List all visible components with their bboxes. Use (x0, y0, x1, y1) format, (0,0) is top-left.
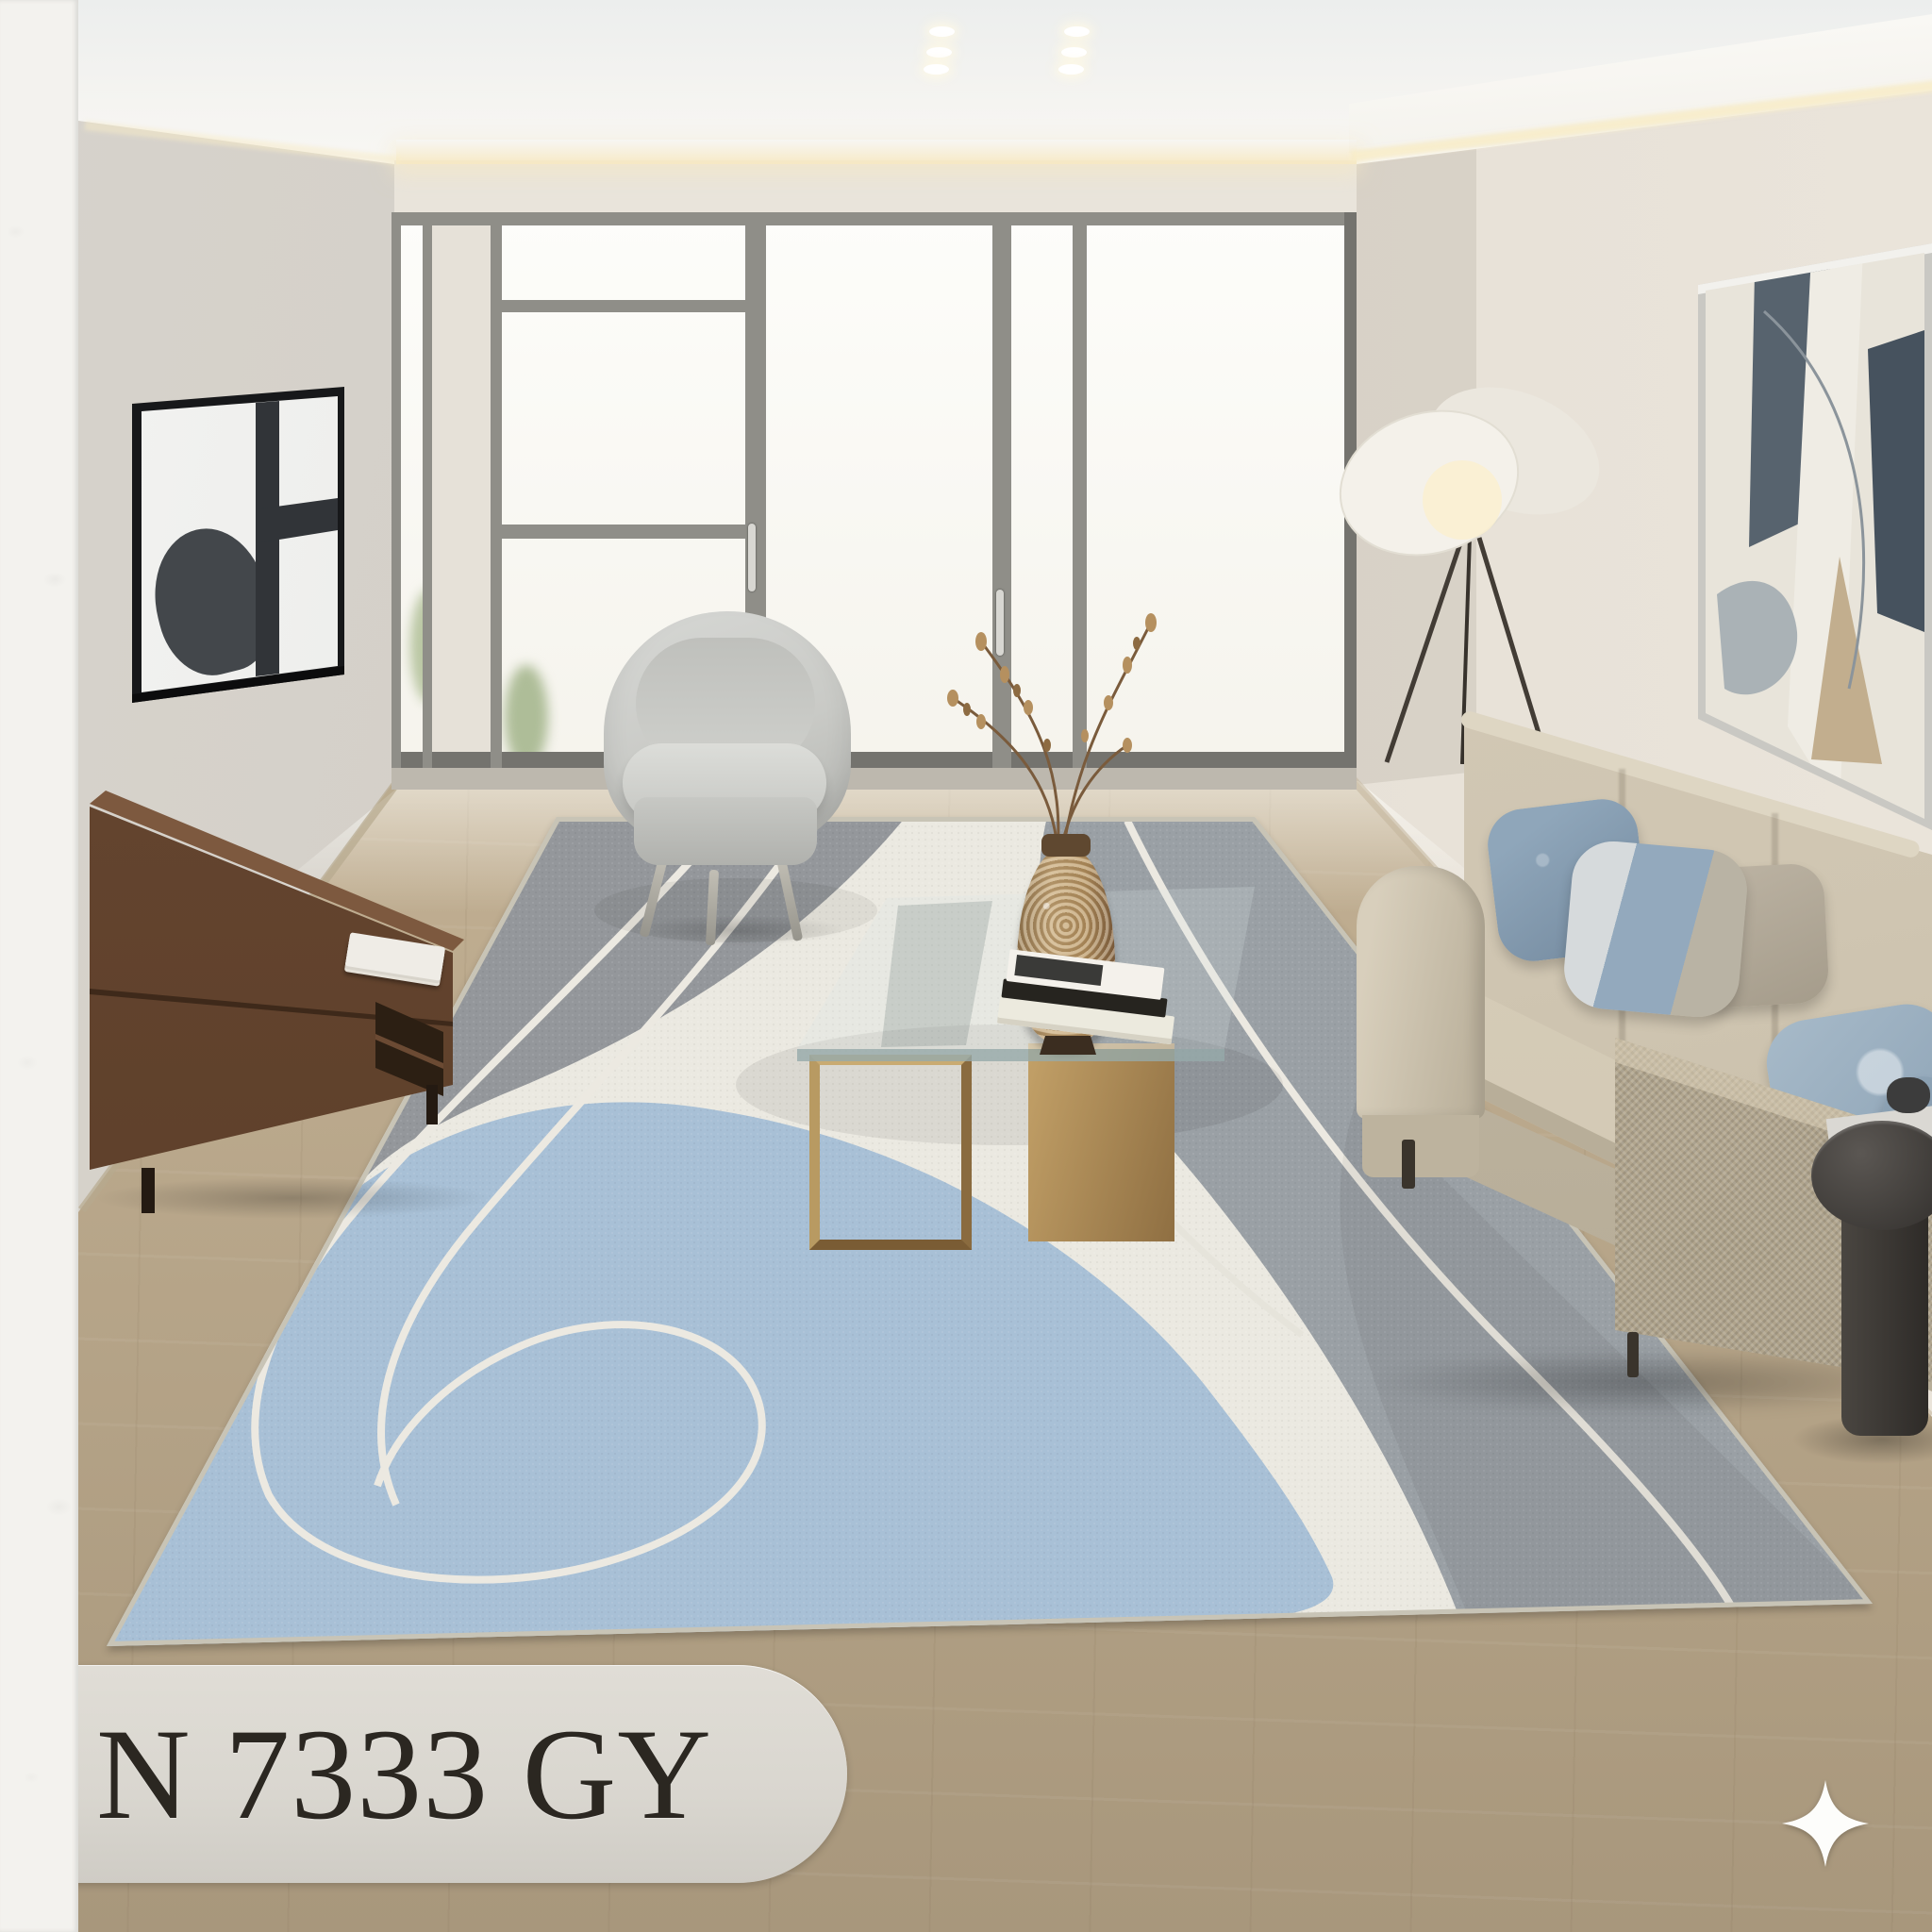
ceiling-spotlight (1058, 64, 1084, 75)
coffee-table-leg-block (1028, 1043, 1174, 1241)
throw-pillow (1561, 838, 1751, 1021)
armchair-shadow (628, 915, 845, 945)
living-room-scene (0, 0, 1932, 1932)
coffee-table-leg-frame (809, 1055, 972, 1250)
sofa-leg (1627, 1332, 1639, 1377)
product-code-plaque: N 7333 GY (0, 1665, 847, 1883)
product-code: N 7333 GY (96, 1699, 712, 1849)
window-mullion (423, 212, 432, 790)
book-cover (1014, 955, 1103, 986)
vase-foot (1040, 1036, 1096, 1055)
window-transom-rail (502, 300, 745, 312)
left-texture-strip (0, 0, 78, 1932)
sofa-arm-base (1362, 1115, 1479, 1177)
ceiling-spotlight (1061, 47, 1087, 58)
sparkle-icon (1780, 1778, 1871, 1869)
ceiling-spotlight (1064, 26, 1090, 37)
dried-branches (924, 585, 1189, 868)
abstract-wall-art (1698, 236, 1932, 840)
window-mid-rail (502, 525, 745, 539)
ceiling-spotlight (924, 64, 949, 75)
cove-light (396, 140, 1357, 164)
window-frame-top (391, 212, 1357, 225)
armchair (594, 604, 877, 953)
wall-above-windows (394, 160, 1357, 219)
ceiling-spotlight (929, 26, 955, 37)
vase-neck (1041, 834, 1091, 857)
wall-pillar (432, 212, 491, 790)
ceiling-spotlight (926, 47, 952, 58)
armchair-base (634, 797, 817, 865)
teapot (1887, 1077, 1930, 1113)
window-mullion (491, 212, 502, 790)
console-leg (426, 1085, 438, 1124)
floor-lamp (1321, 358, 1623, 764)
sofa-arm (1357, 866, 1485, 1119)
console-leg (142, 1168, 155, 1213)
sofa-leg (1402, 1140, 1415, 1189)
window-frame-left (391, 212, 401, 790)
product-photo: N 7333 GY (0, 0, 1932, 1932)
window-handle (748, 524, 756, 591)
side-table-base (1841, 1217, 1928, 1436)
